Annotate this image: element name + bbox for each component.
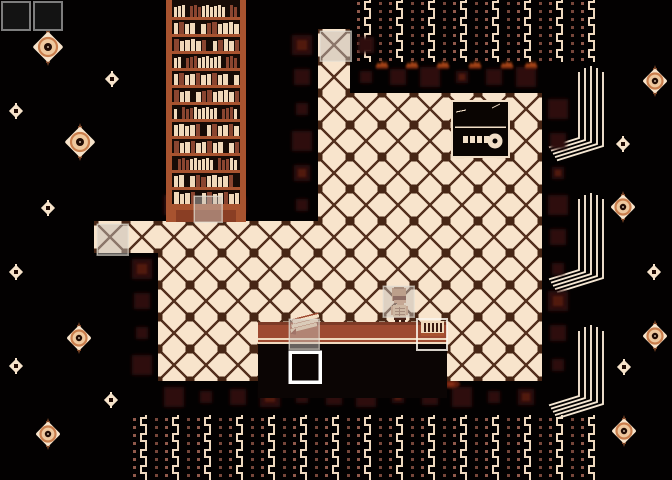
book	[174, 192, 179, 204]
character-pixels	[395, 320, 399, 322]
floor-section	[318, 61, 350, 93]
book	[214, 6, 217, 17]
safe-foot	[497, 156, 505, 159]
book	[191, 141, 195, 153]
book	[206, 107, 209, 119]
book	[230, 158, 233, 170]
ember-block	[294, 69, 310, 85]
book	[226, 57, 229, 68]
eye-glint	[623, 430, 625, 432]
book	[210, 160, 213, 170]
book	[178, 159, 181, 170]
safe-dial-center	[493, 139, 498, 144]
shelf-board	[170, 136, 242, 139]
eye-pupil	[14, 109, 18, 113]
book	[179, 73, 184, 85]
book	[180, 92, 184, 102]
book	[206, 5, 209, 17]
book	[229, 92, 234, 102]
book	[218, 75, 222, 85]
book	[222, 109, 225, 119]
eye-glint	[622, 206, 624, 208]
book	[196, 41, 201, 51]
book	[198, 160, 201, 170]
book	[229, 124, 233, 136]
safe-keypad-button	[463, 136, 468, 143]
dark-flame-core	[447, 382, 455, 386]
eye-glint	[47, 433, 49, 435]
book	[229, 143, 234, 153]
book	[182, 107, 185, 119]
ember-block	[164, 387, 184, 407]
shelf-board	[170, 68, 242, 71]
book	[223, 176, 228, 187]
book	[194, 56, 197, 68]
ui-slot-2[interactable]	[34, 2, 62, 30]
book	[185, 142, 190, 153]
rack-base	[421, 333, 444, 336]
eye-glint	[79, 141, 81, 143]
book	[201, 177, 206, 187]
book	[207, 176, 211, 187]
book	[234, 58, 237, 68]
safe-foot	[456, 156, 464, 159]
zigzag-dot-pattern-bottom	[133, 415, 602, 480]
book	[196, 73, 200, 85]
rack-slot	[428, 323, 430, 332]
highlight-top-tile[interactable]	[320, 31, 351, 61]
book	[190, 159, 193, 170]
book	[229, 22, 233, 34]
floor-section	[94, 221, 542, 253]
book	[235, 142, 239, 153]
book	[174, 141, 179, 153]
book	[174, 109, 177, 119]
highlight-character-tile[interactable]	[383, 286, 414, 317]
desk-rack[interactable]	[421, 321, 444, 336]
book	[212, 73, 217, 85]
book	[207, 125, 211, 136]
book	[174, 7, 177, 17]
book	[210, 58, 213, 68]
book	[179, 124, 184, 136]
book	[218, 126, 222, 136]
bookshelf[interactable]	[166, 0, 246, 222]
book	[207, 90, 212, 102]
ember-glow	[297, 40, 307, 50]
book	[218, 24, 222, 34]
book	[207, 141, 212, 153]
ember-block	[136, 327, 148, 339]
book	[218, 5, 221, 17]
book	[213, 41, 217, 51]
book	[182, 158, 185, 170]
character-pixels	[401, 320, 405, 322]
book	[218, 91, 223, 102]
book	[196, 175, 200, 187]
book	[218, 56, 221, 68]
book	[223, 74, 228, 85]
book	[210, 109, 213, 119]
book	[202, 159, 205, 170]
ember-block	[200, 391, 212, 403]
book	[230, 5, 233, 17]
book	[234, 75, 239, 85]
book	[202, 142, 206, 153]
book	[234, 160, 237, 170]
shelf-board	[170, 187, 242, 190]
book	[190, 23, 195, 34]
ember-block	[360, 71, 372, 83]
desk-front	[258, 343, 447, 398]
book	[210, 7, 213, 17]
ember-block	[550, 133, 566, 149]
book	[218, 177, 222, 187]
book	[212, 124, 217, 136]
book	[185, 24, 189, 34]
book	[185, 193, 190, 204]
ember-block	[488, 391, 500, 403]
book	[224, 192, 228, 204]
ember-block	[550, 229, 566, 245]
ember-block	[292, 131, 312, 151]
book	[190, 108, 193, 119]
book	[223, 125, 228, 136]
book	[185, 40, 190, 51]
book	[218, 142, 223, 153]
book	[179, 175, 184, 187]
game-viewport	[0, 0, 672, 480]
book	[206, 158, 209, 170]
ember-block	[296, 103, 308, 115]
book	[212, 22, 217, 34]
book	[185, 75, 189, 85]
book	[202, 91, 206, 102]
book	[223, 23, 228, 34]
book	[185, 126, 189, 136]
book	[218, 40, 223, 51]
ember-glow	[553, 296, 563, 306]
book	[229, 194, 234, 204]
book	[190, 57, 193, 68]
book	[214, 57, 217, 68]
ui-slot-1[interactable]	[2, 2, 30, 30]
desk-trim-line	[258, 338, 447, 340]
eye-pupil	[14, 364, 18, 368]
book	[226, 108, 229, 119]
book	[190, 6, 193, 17]
book	[174, 90, 179, 102]
book	[178, 6, 181, 17]
book	[229, 41, 234, 51]
eye-glint	[654, 335, 656, 337]
shelf-board	[170, 102, 242, 105]
book	[186, 160, 189, 170]
ember-glow	[298, 169, 306, 177]
book	[235, 91, 239, 102]
rack-slot	[424, 323, 426, 332]
book	[186, 58, 189, 68]
book	[224, 90, 228, 102]
book	[196, 92, 201, 102]
book	[196, 143, 201, 153]
ember-block	[452, 387, 472, 407]
book	[201, 75, 206, 85]
book	[194, 107, 197, 119]
eye-glint	[47, 46, 49, 48]
book	[190, 176, 195, 187]
book	[235, 193, 239, 204]
book	[174, 176, 178, 187]
highlight-desk-papers[interactable]	[289, 319, 319, 349]
book	[174, 125, 178, 136]
book	[224, 39, 228, 51]
ember-block	[516, 67, 536, 87]
ember-block	[390, 69, 406, 85]
game-scene	[0, 0, 672, 480]
book	[182, 5, 185, 17]
book	[202, 57, 205, 68]
ember-block	[548, 195, 568, 215]
eye-pupil	[46, 206, 50, 210]
book	[235, 40, 239, 51]
book	[226, 159, 229, 170]
book	[201, 24, 206, 34]
rack-slot	[440, 323, 442, 332]
desk[interactable]	[258, 322, 447, 398]
zigzag-dot-pattern-top	[356, 0, 602, 62]
book	[174, 39, 179, 51]
eye-pupil	[621, 142, 625, 146]
book	[229, 175, 233, 187]
rack-slot	[436, 323, 438, 332]
book	[234, 126, 239, 136]
book	[202, 6, 205, 17]
book	[234, 109, 237, 119]
eye-pupil	[109, 398, 113, 402]
book	[174, 58, 177, 68]
safe-body	[452, 101, 509, 157]
safe-keypad-button	[477, 136, 482, 143]
book	[180, 143, 184, 153]
book	[234, 24, 239, 34]
book	[180, 41, 184, 51]
shelf-board	[170, 17, 242, 20]
book	[206, 56, 209, 68]
safe[interactable]	[452, 101, 509, 159]
book	[207, 74, 211, 85]
book	[178, 57, 181, 68]
book	[174, 74, 178, 85]
ember-block	[552, 263, 564, 275]
book	[186, 109, 189, 119]
eye-glint	[654, 80, 656, 82]
book	[212, 175, 217, 187]
book	[222, 160, 225, 170]
book	[218, 158, 221, 170]
ember-block	[296, 199, 308, 211]
eye-pupil	[14, 270, 18, 274]
book	[191, 39, 195, 51]
shelf-board	[170, 85, 242, 88]
book	[194, 158, 197, 170]
book	[198, 7, 201, 17]
eye-pupil	[622, 365, 626, 369]
ember-glow	[555, 170, 561, 176]
ember-block	[486, 69, 502, 85]
ember-block	[420, 67, 440, 87]
highlight-left-tile[interactable]	[97, 224, 128, 255]
book	[213, 143, 217, 153]
shelf-board	[170, 34, 242, 37]
ember-block	[132, 355, 152, 375]
book	[202, 108, 205, 119]
safe-keypad-button	[470, 136, 475, 143]
book	[230, 56, 233, 68]
eye-pupil	[652, 270, 656, 274]
book	[213, 92, 217, 102]
book	[214, 108, 217, 119]
ember-block	[358, 37, 374, 53]
book	[202, 40, 206, 51]
book	[190, 125, 195, 136]
ember-block	[552, 359, 564, 371]
book	[196, 124, 200, 136]
highlight-bookshelf[interactable]	[194, 196, 222, 222]
book	[174, 23, 178, 34]
book	[222, 7, 225, 17]
eye-glint	[78, 337, 80, 339]
shelf-board	[170, 119, 242, 122]
ember-block	[134, 293, 150, 309]
book	[194, 5, 197, 17]
rack-slot	[432, 323, 434, 332]
ember-glow	[459, 74, 465, 80]
book	[230, 107, 233, 119]
ember-block	[230, 389, 246, 405]
book	[190, 74, 195, 85]
ember-glow	[137, 264, 147, 274]
book	[185, 91, 190, 102]
shelf-board	[170, 153, 242, 156]
desk-edge	[258, 322, 447, 325]
book	[234, 7, 237, 17]
shelf-board	[170, 170, 242, 173]
ember-block	[550, 325, 566, 341]
eye-pupil	[110, 77, 114, 81]
book	[180, 194, 184, 204]
ember-block	[548, 99, 568, 119]
book	[207, 23, 211, 34]
ember-glow	[522, 393, 530, 401]
book	[198, 58, 201, 68]
book	[198, 109, 201, 119]
shelf-board	[170, 51, 242, 54]
book	[179, 22, 184, 34]
desk-trim-line	[258, 342, 447, 344]
